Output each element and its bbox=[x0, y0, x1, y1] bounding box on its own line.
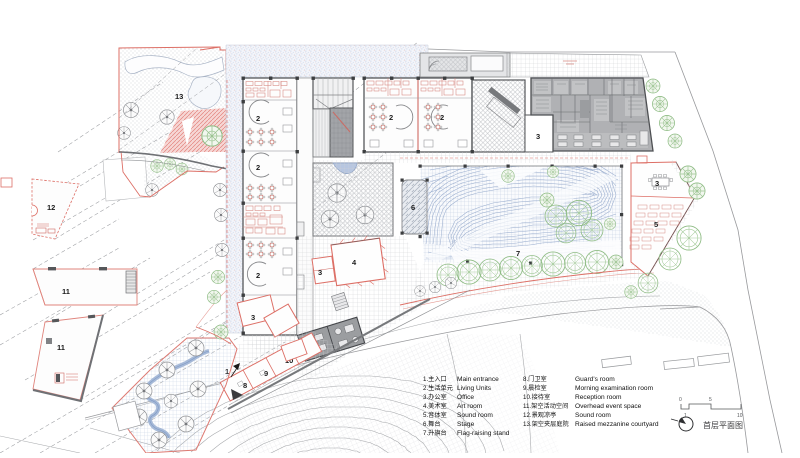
svg-text:3: 3 bbox=[655, 179, 659, 188]
svg-text:Sound room: Sound room bbox=[575, 412, 611, 419]
svg-text:Guard's room: Guard's room bbox=[575, 376, 615, 383]
svg-text:3.办公室: 3.办公室 bbox=[423, 393, 447, 401]
svg-text:12: 12 bbox=[47, 203, 55, 212]
svg-text:3: 3 bbox=[318, 268, 322, 277]
svg-text:1: 1 bbox=[684, 413, 687, 419]
svg-text:3: 3 bbox=[251, 313, 255, 322]
svg-text:Art room: Art room bbox=[457, 403, 483, 410]
svg-text:首层平面图: 首层平面图 bbox=[703, 420, 743, 430]
svg-text:2.生活单元: 2.生活单元 bbox=[423, 384, 453, 392]
svg-text:Office: Office bbox=[457, 394, 474, 401]
svg-text:Morning examination room: Morning examination room bbox=[575, 385, 654, 392]
svg-text:6.舞台: 6.舞台 bbox=[423, 420, 441, 428]
svg-text:5: 5 bbox=[709, 397, 712, 403]
svg-text:11: 11 bbox=[57, 343, 65, 352]
svg-text:5: 5 bbox=[654, 220, 658, 229]
svg-text:1.主入口: 1.主入口 bbox=[423, 375, 447, 383]
svg-text:13: 13 bbox=[175, 92, 183, 101]
svg-text:4.美术室: 4.美术室 bbox=[423, 402, 447, 410]
svg-text:6: 6 bbox=[411, 203, 415, 212]
svg-text:7: 7 bbox=[516, 249, 520, 258]
svg-text:2: 2 bbox=[256, 163, 260, 172]
svg-text:2: 2 bbox=[389, 113, 393, 122]
svg-text:Sound room: Sound room bbox=[457, 412, 493, 419]
svg-text:Reception room: Reception room bbox=[575, 394, 622, 401]
svg-text:2: 2 bbox=[256, 271, 260, 280]
svg-text:2: 2 bbox=[256, 114, 260, 123]
svg-text:Living Units: Living Units bbox=[457, 385, 492, 392]
svg-text:Overhead event space: Overhead event space bbox=[575, 403, 642, 410]
svg-text:13.架空夹层庭院: 13.架空夹层庭院 bbox=[523, 420, 569, 428]
svg-text:Raised mezzanine courtyard: Raised mezzanine courtyard bbox=[575, 421, 659, 428]
svg-text:Stage: Stage bbox=[457, 421, 475, 428]
svg-text:11.架空活动空间: 11.架空活动空间 bbox=[523, 402, 568, 410]
svg-text:3: 3 bbox=[536, 132, 540, 141]
svg-text:9.晨检室: 9.晨检室 bbox=[523, 384, 547, 392]
svg-text:9: 9 bbox=[264, 369, 268, 378]
svg-text:Flag-raising stand: Flag-raising stand bbox=[457, 430, 510, 437]
svg-text:10: 10 bbox=[737, 413, 743, 419]
svg-text:0: 0 bbox=[679, 397, 682, 403]
svg-text:Main entrance: Main entrance bbox=[457, 376, 499, 383]
svg-text:8: 8 bbox=[243, 381, 247, 390]
svg-text:5.音体室: 5.音体室 bbox=[423, 411, 447, 419]
svg-text:7.升旗台: 7.升旗台 bbox=[423, 429, 447, 437]
svg-text:11: 11 bbox=[62, 287, 70, 296]
svg-text:8.门卫室: 8.门卫室 bbox=[523, 375, 547, 383]
svg-text:10.接待室: 10.接待室 bbox=[523, 393, 550, 401]
svg-text:12.景观凉亭: 12.景观凉亭 bbox=[523, 411, 556, 419]
